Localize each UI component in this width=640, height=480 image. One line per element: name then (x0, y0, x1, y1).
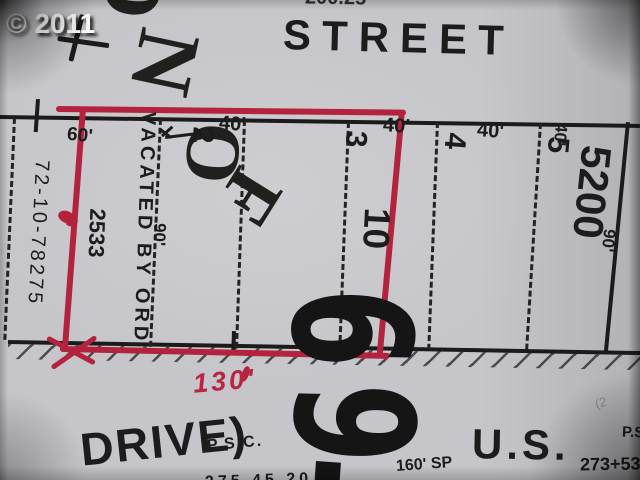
photo-credit: © 2011 (6, 10, 95, 38)
sp-dimension: 160' SP (396, 455, 453, 475)
inner-lot-number: 10 (357, 207, 396, 250)
plat-map-photo: O N O F © 2011 200.25 STREET 2 40' 3 40'… (0, 0, 640, 480)
survey-ref: 72-10-78275 (24, 159, 52, 306)
watermark-letter-f: F (204, 156, 295, 238)
watermark-letter-o-top: O (87, 0, 177, 23)
big-number-digit-6: 6 (284, 287, 417, 370)
lot-number-3: 3 (340, 130, 371, 148)
station-number: 273+53 (580, 454, 640, 473)
watermark-letter-n: N (114, 22, 213, 102)
block-number: 5200 (566, 143, 618, 240)
us-label: U.S. (472, 423, 570, 467)
lot-width-2: 40' (218, 113, 246, 135)
street-line (0, 115, 640, 128)
vacated-ordinance-number: 2533 (85, 208, 109, 258)
lot-number-2: 2 (187, 126, 218, 144)
vacated-note: VACATED BY ORD (130, 111, 158, 344)
bottom-partial-numbers: 275 45.20 (205, 471, 313, 480)
lot-line-dashed (3, 118, 16, 340)
lot-width-4: 40' (476, 120, 504, 142)
lot-width-3: 40' (382, 115, 410, 137)
ps-right-label: P.S (622, 425, 640, 441)
lot-width-5: 40' (551, 122, 570, 146)
red-frontage-dimension: 130' (192, 365, 258, 397)
lot-number-4: 4 (439, 131, 470, 150)
partial-glyph-bar (315, 461, 341, 480)
street-label: STREET (282, 14, 515, 62)
big-number-digit-9: 9 (286, 382, 419, 465)
lot-line-dashed (525, 123, 542, 350)
faint-pencil-mark: (2 (594, 395, 609, 411)
top-partial-number: 200.25 (305, 0, 367, 9)
front-dimension: 60' (66, 125, 94, 147)
